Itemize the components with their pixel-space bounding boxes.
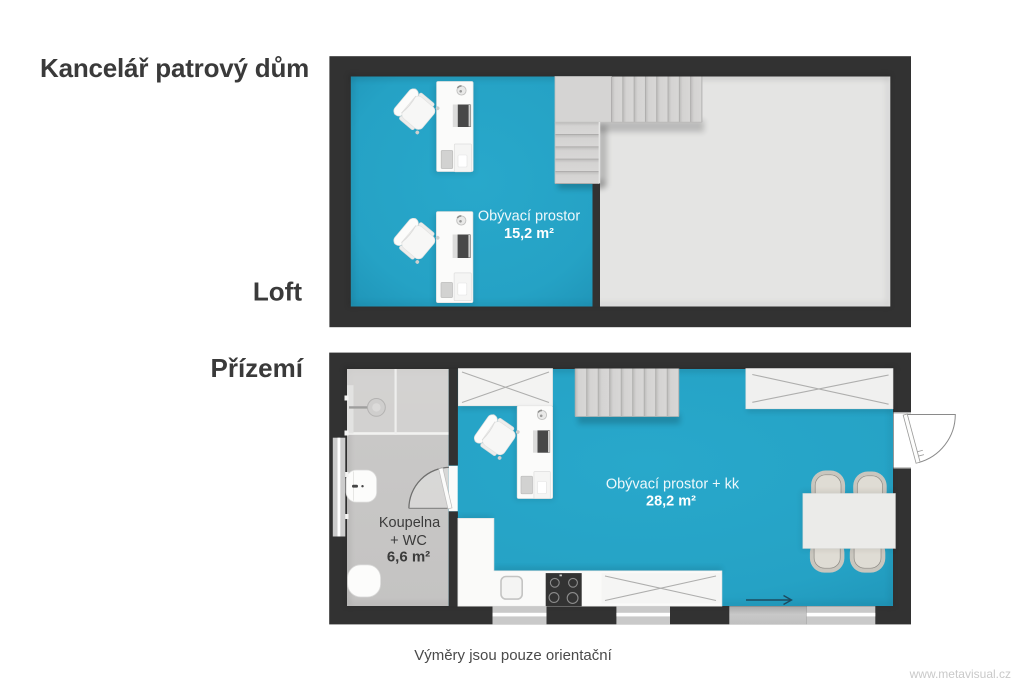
- svg-text:15,2 m²: 15,2 m²: [504, 226, 554, 242]
- svg-text:Přízemí: Přízemí: [211, 353, 304, 383]
- svg-text:Loft: Loft: [253, 277, 302, 307]
- svg-text:www.metavisual.cz: www.metavisual.cz: [909, 667, 1011, 681]
- svg-text:+ WC: + WC: [390, 533, 427, 549]
- svg-text:6,6 m²: 6,6 m²: [387, 549, 430, 566]
- svg-text:Obývací prostor: Obývací prostor: [478, 209, 581, 225]
- svg-text:Výměry jsou pouze orientační: Výměry jsou pouze orientační: [414, 647, 612, 664]
- svg-text:Kancelář patrový dům: Kancelář patrový dům: [40, 53, 309, 83]
- svg-text:28,2 m²: 28,2 m²: [646, 494, 696, 510]
- svg-text:Koupelna: Koupelna: [379, 515, 441, 531]
- svg-text:Obývací prostor + kk: Obývací prostor + kk: [606, 477, 740, 493]
